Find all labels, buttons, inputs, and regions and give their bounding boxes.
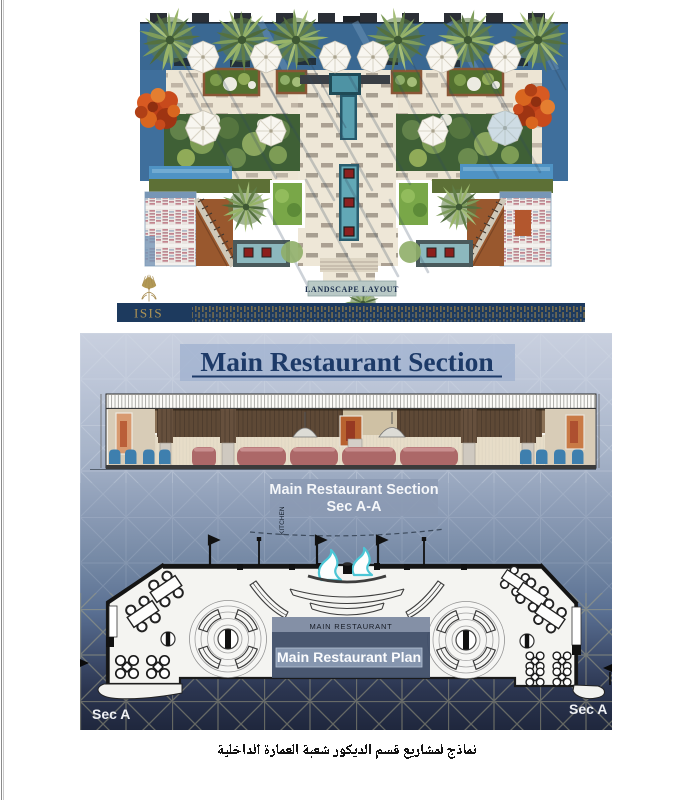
svg-text:LANDSCAPE LAYOUT: LANDSCAPE LAYOUT — [305, 285, 399, 294]
svg-text:Sec A: Sec A — [92, 706, 130, 722]
svg-text:Main Restaurant Section: Main Restaurant Section — [200, 346, 493, 377]
svg-text:MAIN RESTAURANT: MAIN RESTAURANT — [309, 622, 392, 631]
svg-text:ISIS: ISIS — [134, 306, 163, 321]
svg-text:Main Restaurant Plan: Main Restaurant Plan — [277, 650, 421, 666]
svg-text:Sec A: Sec A — [569, 701, 607, 717]
svg-text:Main Restaurant Section: Main Restaurant Section — [269, 482, 438, 498]
svg-text:Sec A-A: Sec A-A — [326, 499, 382, 515]
svg-text:KITCHEN: KITCHEN — [279, 506, 286, 535]
